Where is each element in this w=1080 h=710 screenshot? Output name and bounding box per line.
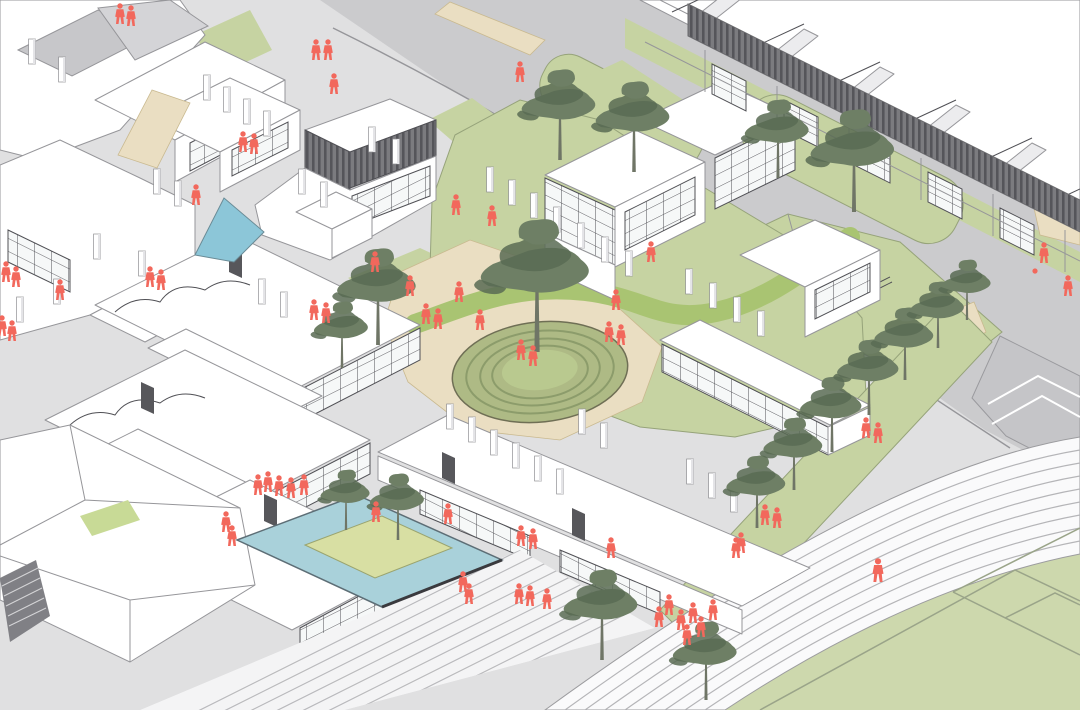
column-pillar (94, 234, 101, 259)
column-pillar (686, 269, 693, 294)
column-pillar (601, 423, 608, 448)
site-plan-svg (0, 0, 1080, 710)
ball-icon (1032, 268, 1037, 273)
column-pillar (469, 417, 476, 442)
column-pillar (154, 169, 161, 194)
column-pillar (29, 39, 36, 64)
column-pillar (264, 111, 271, 136)
column-pillar (447, 404, 454, 429)
column-pillar (204, 75, 211, 100)
column-pillar (626, 251, 633, 276)
column-pillar (509, 180, 516, 205)
architectural-rendering (0, 0, 1080, 710)
column-pillar (487, 167, 494, 192)
column-pillar (513, 443, 520, 468)
column-pillar (59, 57, 66, 82)
column-pillar (491, 430, 498, 455)
column-pillar (734, 297, 741, 322)
column-pillar (369, 127, 376, 152)
column-pillar (321, 182, 328, 207)
column-pillar (535, 456, 542, 481)
column-pillar (299, 169, 306, 194)
column-pillar (259, 279, 266, 304)
column-pillar (578, 223, 585, 248)
column-pillar (557, 469, 564, 494)
column-pillar (531, 193, 538, 218)
column-pillar (709, 473, 716, 498)
column-pillar (687, 459, 694, 484)
column-pillar (710, 283, 717, 308)
column-pillar (758, 311, 765, 336)
column-pillar (224, 87, 231, 112)
column-pillar (393, 139, 400, 164)
column-pillar (602, 237, 609, 262)
column-pillar (17, 297, 24, 322)
column-pillar (139, 251, 146, 276)
column-pillar (175, 181, 182, 206)
column-pillar (244, 99, 251, 124)
column-pillar (579, 409, 586, 434)
column-pillar (281, 292, 288, 317)
